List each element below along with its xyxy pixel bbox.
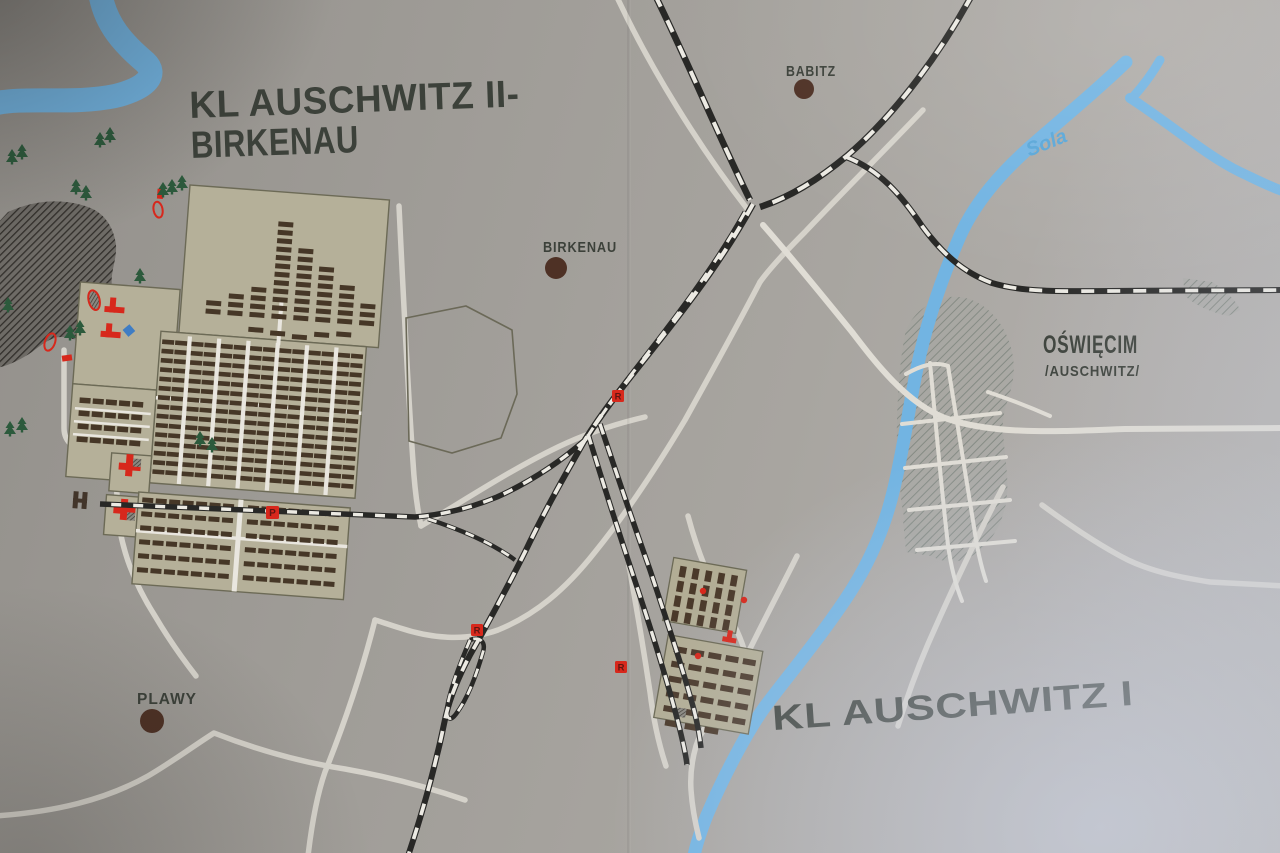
barrack xyxy=(349,372,361,377)
barrack xyxy=(319,379,331,384)
birkenau-village-label: BIRKENAU xyxy=(543,239,617,256)
barrack xyxy=(274,413,286,418)
barrack xyxy=(186,406,198,411)
barrack xyxy=(221,531,232,537)
barrack xyxy=(166,541,177,547)
barrack xyxy=(246,402,258,407)
red-dot xyxy=(700,588,706,594)
barrack xyxy=(232,363,244,368)
road-plawy-west xyxy=(0,733,465,816)
barrack xyxy=(298,551,309,557)
barrack xyxy=(342,474,354,479)
barrack xyxy=(116,439,127,445)
barrack xyxy=(140,525,151,531)
barrack xyxy=(259,534,270,540)
barrack xyxy=(207,530,218,536)
barrack xyxy=(246,392,258,397)
birkenau-camp-title-line2: BIRKENAU xyxy=(190,119,359,167)
barrack xyxy=(203,361,215,366)
pine-tree-icon xyxy=(16,417,28,433)
barrack xyxy=(226,447,238,452)
barrack xyxy=(327,525,338,531)
railway-east xyxy=(846,157,1280,291)
barrack xyxy=(278,367,290,372)
barrack xyxy=(285,442,297,447)
barrack xyxy=(167,527,178,533)
railway-east-dashes xyxy=(846,157,1280,291)
barrack xyxy=(142,497,153,503)
barrack xyxy=(161,349,173,354)
barrack xyxy=(191,571,202,577)
barrack xyxy=(164,569,175,575)
barrack xyxy=(167,452,179,457)
barrack xyxy=(279,357,291,362)
barrack xyxy=(320,370,332,375)
barrack xyxy=(168,513,179,519)
barrack xyxy=(261,375,273,380)
barrack xyxy=(185,425,197,430)
barrack xyxy=(312,481,324,486)
barrack xyxy=(90,437,101,443)
barrack xyxy=(194,529,205,535)
barrack xyxy=(285,451,297,456)
barrack xyxy=(313,463,325,468)
barrack xyxy=(245,411,257,416)
barrack xyxy=(257,430,269,435)
barrack xyxy=(165,555,176,561)
barrack xyxy=(181,514,192,520)
barrack xyxy=(151,554,162,560)
barrack xyxy=(218,381,230,386)
barrack xyxy=(153,460,165,465)
ash-pond-icon xyxy=(152,201,164,218)
barrack xyxy=(244,420,256,425)
barrack xyxy=(106,399,117,405)
barrack xyxy=(315,435,327,440)
barrack xyxy=(285,550,296,556)
barrack xyxy=(273,535,284,541)
barrack xyxy=(183,453,195,458)
barrack xyxy=(255,458,267,463)
barrack xyxy=(119,400,130,406)
barrack xyxy=(304,415,316,420)
barrack xyxy=(325,553,336,559)
barrack xyxy=(154,512,165,518)
barrack xyxy=(311,566,322,572)
planned-expansion-outline xyxy=(406,306,517,453)
ramp-marker-letter: R xyxy=(618,663,625,674)
barrack xyxy=(188,388,200,393)
gatehouse-building xyxy=(72,491,87,509)
pine-tree-icon xyxy=(104,127,116,143)
barrack xyxy=(227,437,239,442)
barrack xyxy=(222,517,233,523)
barrack xyxy=(276,395,288,400)
sola-river-top-fork xyxy=(1133,60,1160,97)
barrack xyxy=(118,413,129,419)
barrack xyxy=(292,358,304,363)
barrack xyxy=(182,471,194,476)
barrack xyxy=(257,421,269,426)
barrack xyxy=(227,428,239,433)
barrack xyxy=(297,565,308,571)
barrack xyxy=(152,469,164,474)
barrack xyxy=(321,361,333,366)
barrack xyxy=(274,422,286,427)
sola-river-label: Sola xyxy=(1023,125,1070,161)
barrack xyxy=(343,456,355,461)
barrack xyxy=(214,427,226,432)
barrack xyxy=(76,436,87,442)
barrack xyxy=(138,553,149,559)
barrack xyxy=(191,351,203,356)
oswiecim-alt-label: /AUSCHWITZ/ xyxy=(1045,363,1140,380)
barrack xyxy=(332,436,344,441)
barrack xyxy=(186,416,198,421)
barrack xyxy=(348,391,360,396)
barrack xyxy=(201,380,213,385)
road-oswiecim-se xyxy=(1042,505,1280,586)
barrack xyxy=(282,479,294,484)
pine-tree-icon xyxy=(134,268,146,284)
barrack xyxy=(260,520,271,526)
barrack xyxy=(272,450,284,455)
barrack xyxy=(250,346,262,351)
barrack xyxy=(150,568,161,574)
ramp-marker-letter: R xyxy=(615,392,622,403)
barrack xyxy=(178,556,189,562)
barrack xyxy=(243,439,255,444)
pine-tree-icon xyxy=(166,179,178,195)
barrack xyxy=(204,352,216,357)
barrack xyxy=(179,542,190,548)
road-north-oswiecim xyxy=(763,225,1280,431)
barrack xyxy=(201,389,213,394)
barrack xyxy=(313,538,324,544)
barrack xyxy=(174,350,186,355)
barrack xyxy=(169,415,181,420)
barrack xyxy=(220,545,231,551)
auschwitz1-title: KL AUSCHWITZ I xyxy=(771,674,1135,738)
barrack xyxy=(330,464,342,469)
barrack xyxy=(253,477,265,482)
barrack xyxy=(269,577,280,583)
road-camp-east-boundary xyxy=(399,206,421,526)
barrack xyxy=(270,478,282,483)
barrack xyxy=(254,468,266,473)
ramp-marker-letter: R xyxy=(474,626,481,637)
barrack xyxy=(242,457,254,462)
barrack xyxy=(249,355,261,360)
barrack xyxy=(310,580,321,586)
barrack xyxy=(190,360,202,365)
barrack xyxy=(271,459,283,464)
barrack xyxy=(271,563,282,569)
barrack xyxy=(165,470,177,475)
barrack xyxy=(323,581,334,587)
barrack xyxy=(161,358,173,363)
barrack xyxy=(214,437,226,442)
road-plawy-south xyxy=(308,620,375,853)
barrack xyxy=(349,381,361,386)
barrack xyxy=(93,398,104,404)
barrack xyxy=(191,342,203,347)
pine-tree-icon xyxy=(70,179,82,195)
barrack xyxy=(315,444,327,449)
pine-tree-icon xyxy=(80,185,92,201)
barrack xyxy=(283,578,294,584)
barrack xyxy=(131,414,142,420)
barrack xyxy=(141,511,152,517)
barrack xyxy=(219,559,230,565)
barrack xyxy=(244,429,256,434)
barrack xyxy=(334,399,346,404)
barrack xyxy=(255,449,267,454)
barrack xyxy=(317,407,329,412)
barrack xyxy=(170,405,182,410)
barrack xyxy=(324,567,335,573)
barrack xyxy=(229,400,241,405)
platform-marker-letter: P xyxy=(269,508,276,519)
barrack xyxy=(166,461,178,466)
babitz-dot xyxy=(794,79,814,99)
barrack xyxy=(277,376,289,381)
barrack xyxy=(240,476,252,481)
barrack xyxy=(198,426,210,431)
barrack xyxy=(204,343,216,348)
birkenau-village-dot xyxy=(545,257,567,279)
barrack xyxy=(286,536,297,542)
barrack xyxy=(289,396,301,401)
town-hatch-ne xyxy=(1183,278,1240,316)
barrack xyxy=(199,417,211,422)
crematorium4-icon xyxy=(105,323,112,337)
hatch-square-icon xyxy=(127,512,136,521)
barrack xyxy=(189,369,201,374)
barrack xyxy=(156,414,168,419)
vistula-river xyxy=(0,0,151,104)
barrack xyxy=(287,522,298,528)
barrack xyxy=(248,374,260,379)
barrack xyxy=(247,519,258,525)
barrack xyxy=(225,465,237,470)
barrack xyxy=(167,442,179,447)
babitz-label: BABITZ xyxy=(786,63,836,80)
barrack xyxy=(351,354,363,359)
barrack xyxy=(220,353,232,358)
barrack xyxy=(334,408,346,413)
barrack xyxy=(314,453,326,458)
barrack xyxy=(272,549,283,555)
barrack xyxy=(274,521,285,527)
barrack xyxy=(336,380,348,385)
barrack xyxy=(195,515,206,521)
barrack xyxy=(338,353,350,358)
barrack xyxy=(139,539,150,545)
barrack xyxy=(302,434,314,439)
barrack xyxy=(216,409,228,414)
barrack xyxy=(154,451,166,456)
barrack xyxy=(231,382,243,387)
barrack xyxy=(184,444,196,449)
barrack xyxy=(272,441,284,446)
barrack xyxy=(312,552,323,558)
barrack xyxy=(258,548,269,554)
barrack xyxy=(234,345,246,350)
barrack xyxy=(137,567,148,573)
barrack xyxy=(246,533,257,539)
barrack xyxy=(221,344,233,349)
barrack xyxy=(259,393,271,398)
barrack xyxy=(301,452,313,457)
barrack xyxy=(319,388,331,393)
barrack xyxy=(262,365,274,370)
barrack xyxy=(275,404,287,409)
barrack xyxy=(156,498,167,504)
barrack xyxy=(193,543,204,549)
barrack xyxy=(169,424,181,429)
barrack xyxy=(300,537,311,543)
railway-loop-siding xyxy=(447,639,484,719)
barrack xyxy=(258,412,270,417)
barrack xyxy=(159,386,171,391)
barrack xyxy=(284,564,295,570)
barrack xyxy=(172,377,184,382)
barrack xyxy=(195,472,207,477)
barrack xyxy=(345,428,357,433)
auschwitz-complex-map: P R R R KL AUSCHWITZ II- BIRKENAU BABITZ… xyxy=(0,0,1280,853)
barrack xyxy=(91,424,102,430)
barrack xyxy=(337,371,349,376)
barrack xyxy=(286,433,298,438)
barrack xyxy=(245,547,256,553)
plawy-dot xyxy=(140,709,164,733)
barrack xyxy=(309,350,321,355)
barrack xyxy=(184,434,196,439)
barrack xyxy=(322,351,334,356)
barrack xyxy=(199,407,211,412)
barrack xyxy=(262,356,274,361)
plawy-label: PLAWY xyxy=(137,691,197,708)
barrack xyxy=(300,462,312,467)
barrack xyxy=(308,360,320,365)
barrack xyxy=(256,440,268,445)
hatch-square-icon xyxy=(133,459,142,468)
barrack xyxy=(152,540,163,546)
barrack xyxy=(287,423,299,428)
barrack xyxy=(244,561,255,567)
barrack xyxy=(232,373,244,378)
barrack xyxy=(173,368,185,373)
barrack xyxy=(270,469,282,474)
barrack xyxy=(218,573,229,579)
railway-northeast xyxy=(760,0,972,207)
barrack xyxy=(317,416,329,421)
barrack xyxy=(249,365,261,370)
barrack xyxy=(171,396,183,401)
barrack xyxy=(216,399,228,404)
barrack xyxy=(345,437,357,442)
barrack xyxy=(225,456,237,461)
barrack xyxy=(160,367,172,372)
barrack xyxy=(78,410,89,416)
barrack xyxy=(105,412,116,418)
road-nw-parallel xyxy=(616,0,748,210)
barrack xyxy=(328,482,340,487)
pine-tree-icon xyxy=(16,144,28,160)
barrack xyxy=(202,370,214,375)
barrack xyxy=(288,405,300,410)
barrack xyxy=(77,423,88,429)
barrack xyxy=(230,391,242,396)
barrack xyxy=(318,398,330,403)
barrack xyxy=(168,433,180,438)
barrack xyxy=(306,378,318,383)
barrack xyxy=(103,438,114,444)
barrack xyxy=(79,397,90,403)
barrack xyxy=(104,425,115,431)
barrack xyxy=(200,398,212,403)
barrack xyxy=(347,400,359,405)
railway-northeast-dashes xyxy=(760,0,972,207)
barrack xyxy=(326,539,337,545)
barrack xyxy=(304,406,316,411)
barrack xyxy=(247,383,259,388)
pine-tree-icon xyxy=(4,421,16,437)
barrack xyxy=(331,445,343,450)
barrack xyxy=(300,471,312,476)
barrack xyxy=(224,475,236,480)
barrack xyxy=(204,572,215,578)
barrack xyxy=(284,460,296,465)
wall-map-photo: P R R R KL AUSCHWITZ II- BIRKENAU BABITZ… xyxy=(0,0,1280,853)
barrack xyxy=(171,387,183,392)
barrack xyxy=(229,410,241,415)
barrack xyxy=(175,340,187,345)
barrack xyxy=(92,411,103,417)
barrack xyxy=(243,575,254,581)
barrack xyxy=(291,368,303,373)
barrack xyxy=(212,455,224,460)
sola-river-east-arm xyxy=(1130,98,1280,192)
barrack xyxy=(346,418,358,423)
barrack xyxy=(174,359,186,364)
barrack xyxy=(153,526,164,532)
barrack xyxy=(180,528,191,534)
barrack xyxy=(157,404,169,409)
barrack xyxy=(259,403,271,408)
barrack xyxy=(233,354,245,359)
barrack xyxy=(219,362,231,367)
barrack xyxy=(290,377,302,382)
barrack xyxy=(117,426,128,432)
barrack xyxy=(305,397,317,402)
barrack xyxy=(132,401,143,407)
oswiecim-label: OŚWIĘCIM xyxy=(1043,329,1138,359)
barrack xyxy=(287,414,299,419)
crematorium5-icon xyxy=(109,297,116,312)
barrack xyxy=(289,386,301,391)
barrack xyxy=(228,419,240,424)
barrack xyxy=(158,395,170,400)
barrack xyxy=(276,385,288,390)
barrack xyxy=(215,418,227,423)
barrack xyxy=(195,463,207,468)
barrack xyxy=(256,576,267,582)
barrack xyxy=(241,467,253,472)
barrack xyxy=(192,557,203,563)
barrack xyxy=(260,384,272,389)
